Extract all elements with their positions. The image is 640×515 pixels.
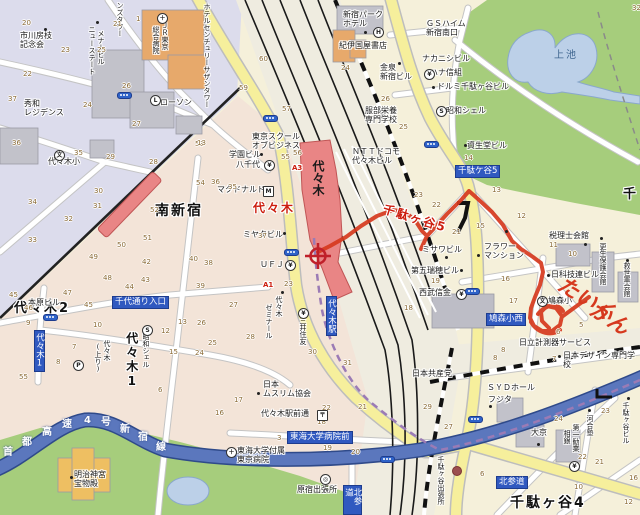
block-number: 26 bbox=[381, 95, 390, 103]
block-number: 45 bbox=[84, 301, 93, 309]
block-number: 26 bbox=[122, 82, 131, 90]
map-label: 代々木駅前通 bbox=[261, 409, 309, 418]
block-number: 37 bbox=[258, 232, 267, 240]
map-sign-label: 代々木駅 bbox=[326, 296, 337, 336]
map-label: 原宿出張所 bbox=[297, 485, 337, 494]
block-number: 8 bbox=[493, 354, 497, 362]
block-number: 18 bbox=[404, 304, 413, 312]
map-label: 新宿パーク ホテル bbox=[343, 10, 383, 28]
building-dot-icon bbox=[281, 291, 284, 294]
block-number: 35 bbox=[74, 149, 83, 157]
block-number: 7 bbox=[552, 355, 556, 363]
map-label: A1 bbox=[263, 281, 273, 289]
block-number: 23 bbox=[284, 280, 293, 288]
block-number: 34 bbox=[28, 198, 37, 206]
block-number: 36 bbox=[211, 178, 220, 186]
block-number: 8 bbox=[501, 346, 505, 354]
block-number: 31 bbox=[93, 202, 102, 210]
block-number: 22 bbox=[23, 70, 32, 78]
traffic-signal-icon bbox=[43, 314, 58, 321]
building-dot-icon bbox=[547, 274, 550, 277]
building-dot-icon bbox=[432, 86, 435, 89]
bank-icon: ¥ bbox=[264, 160, 275, 171]
block-number: 51 bbox=[143, 234, 152, 242]
block-number: 6 bbox=[158, 386, 162, 394]
building-dot-icon bbox=[537, 443, 540, 446]
building-dot-icon bbox=[489, 405, 492, 408]
map-label: 明治神宮 宝物殿 bbox=[74, 470, 106, 488]
map-label: 八千代 bbox=[236, 160, 260, 169]
block-number: 6 bbox=[480, 470, 484, 478]
map-label: 線 bbox=[156, 442, 166, 454]
block-number: 5 bbox=[579, 321, 583, 329]
block-number: 33 bbox=[28, 236, 37, 244]
block-number: 23 bbox=[601, 407, 610, 415]
block-number: 9 bbox=[26, 319, 30, 327]
map-canvas[interactable]: 代々木 南新宿代々木2代々木1千駄ヶ谷4千上池代々木千駄ヶ谷5千駄ケ谷5千代通り… bbox=[0, 0, 640, 515]
block-number: 16 bbox=[629, 474, 638, 482]
block-number: 32 bbox=[632, 4, 640, 12]
block-number: 25 bbox=[208, 339, 217, 347]
map-label: ＪＲ東京 bbox=[161, 22, 169, 50]
map-label: ＳＹＤホール bbox=[487, 383, 535, 392]
map-label: ドルミ千駄ヶ谷ビル bbox=[437, 82, 509, 91]
map-label: 更生保護会館 bbox=[599, 243, 607, 285]
map-sign-label: 千代通り入口 bbox=[112, 296, 169, 309]
block-number: 25 bbox=[399, 123, 408, 131]
block-number: 30 bbox=[308, 348, 317, 356]
block-number: 10 bbox=[93, 321, 102, 329]
block-number: 13 bbox=[197, 139, 206, 147]
block-number: 13 bbox=[178, 318, 187, 326]
map-label: 代々木 bbox=[253, 202, 295, 216]
map-label: 市川房枝 記念会 bbox=[20, 31, 52, 49]
map-label: ゼミナール bbox=[265, 304, 273, 339]
block-number: 27 bbox=[444, 423, 453, 431]
map-label: ホテルセンチュリーサザンタワー bbox=[203, 3, 211, 108]
block-number: 55 bbox=[281, 153, 290, 161]
convenience-store-icon: L bbox=[150, 95, 161, 106]
map-label: ナカニシビル bbox=[422, 54, 470, 63]
block-number: 45 bbox=[9, 291, 18, 299]
map-label: 第一勧業 bbox=[572, 424, 580, 452]
block-number: 1 bbox=[136, 15, 140, 23]
block-number: 49 bbox=[89, 253, 98, 261]
block-number: 54 bbox=[196, 179, 205, 187]
traffic-signal-icon bbox=[284, 249, 299, 256]
map-label: 昭和シェル bbox=[446, 106, 486, 115]
map-label: 相銀 bbox=[563, 430, 571, 444]
map-label: 代々木 bbox=[103, 340, 111, 361]
map-label: 首 bbox=[3, 447, 13, 459]
map-label: 千駄ヶ谷ビル bbox=[622, 402, 630, 444]
block-number: 38 bbox=[204, 259, 213, 267]
traffic-signal-icon bbox=[263, 115, 278, 122]
block-number: 32 bbox=[64, 215, 73, 223]
map-label: 学園ビル bbox=[229, 150, 261, 159]
block-number: 42 bbox=[142, 258, 151, 266]
map-label: 千駄ヶ谷出張所 bbox=[437, 456, 445, 505]
block-number: 21 bbox=[452, 228, 461, 236]
block-number: 21 bbox=[358, 403, 367, 411]
building-dot-icon bbox=[558, 355, 561, 358]
block-number: 27 bbox=[229, 301, 238, 309]
block-number: 15 bbox=[476, 222, 485, 230]
map-label: 秀和 レジデンス bbox=[24, 99, 64, 117]
block-number: 22 bbox=[432, 201, 441, 209]
block-number: 56 bbox=[293, 149, 302, 157]
block-number: 10 bbox=[568, 250, 577, 258]
building-dot-icon bbox=[626, 259, 629, 262]
map-label: 都 bbox=[22, 437, 32, 449]
building-dot-icon bbox=[627, 397, 630, 400]
traffic-signal-icon bbox=[468, 416, 483, 423]
block-number: 27 bbox=[132, 120, 141, 128]
block-number: 16 bbox=[501, 275, 510, 283]
bank-icon: ¥ bbox=[569, 461, 580, 472]
building-dot-icon bbox=[398, 62, 401, 65]
map-label: 救世軍会館 bbox=[623, 262, 631, 297]
block-number: 52 bbox=[150, 206, 159, 214]
building-dot-icon bbox=[260, 153, 263, 156]
map-label: 号 bbox=[101, 417, 111, 429]
block-number: 15 bbox=[169, 348, 178, 356]
block-number: 48 bbox=[103, 274, 112, 282]
block-number: 17 bbox=[509, 297, 518, 305]
building-dot-icon bbox=[445, 256, 448, 259]
block-number: 17 bbox=[234, 396, 243, 404]
block-number: 57 bbox=[282, 105, 291, 113]
map-label: かん bbox=[585, 297, 633, 340]
map-label: ミサワビル bbox=[422, 245, 462, 254]
mcdonalds-icon: M bbox=[263, 186, 274, 197]
map-label: マクドナルド bbox=[217, 185, 265, 194]
block-number: 25 bbox=[97, 46, 106, 54]
building-dot-icon bbox=[70, 476, 73, 479]
building-dot-icon bbox=[364, 31, 367, 34]
block-number: 46 bbox=[24, 304, 33, 312]
map-label: 西武信金 bbox=[419, 288, 451, 297]
parking-icon: P bbox=[73, 360, 84, 371]
map-sign-label: 千駄ケ谷5 bbox=[455, 165, 500, 178]
map-label: 新 bbox=[120, 424, 130, 436]
building-dot-icon bbox=[505, 230, 508, 233]
map-label: 宿 bbox=[138, 432, 148, 444]
block-number: 8 bbox=[56, 358, 60, 366]
map-label: 千 bbox=[623, 188, 638, 203]
block-number: 36 bbox=[12, 139, 21, 147]
traffic-signal-icon bbox=[117, 92, 132, 99]
block-number: 23 bbox=[61, 46, 70, 54]
block-number: 23 bbox=[414, 191, 423, 199]
map-sign-label: 東海大学病院前 bbox=[287, 431, 353, 444]
map-label: 日立計測器サービス bbox=[519, 338, 591, 347]
map-label: 税理士会館 bbox=[549, 231, 589, 240]
block-number: 3 bbox=[277, 434, 281, 442]
entrance-spot-icon bbox=[452, 466, 462, 476]
block-number: 16 bbox=[215, 409, 224, 417]
block-number: 24 bbox=[341, 64, 350, 72]
building-dot-icon bbox=[464, 144, 467, 147]
traffic-signal-icon bbox=[380, 456, 395, 463]
map-label: 三井住友 bbox=[299, 317, 307, 345]
map-label: 第五瑞穂ビル bbox=[411, 266, 459, 275]
block-number: 28 bbox=[149, 158, 158, 166]
block-number: 12 bbox=[161, 327, 170, 335]
block-number: 21 bbox=[113, 20, 122, 28]
hospital-icon: ＋ bbox=[157, 13, 168, 24]
map-label: 南新宿 bbox=[155, 203, 203, 219]
block-number: 39 bbox=[196, 282, 205, 290]
map-label: ＧＳハイム 新宿南口 bbox=[426, 19, 466, 37]
block-number: 14 bbox=[464, 154, 473, 162]
block-number: 47 bbox=[63, 289, 72, 297]
map-sign-label: 鳩森小西 bbox=[486, 313, 526, 326]
block-number: 43 bbox=[141, 276, 150, 284]
block-number: 37 bbox=[8, 95, 17, 103]
block-number: 20 bbox=[22, 19, 31, 27]
map-label: フラワー マンション bbox=[484, 242, 524, 260]
block-number: 13 bbox=[492, 186, 501, 194]
map-label: (上り) bbox=[94, 343, 102, 373]
block-number: 35 bbox=[228, 183, 237, 191]
map-label: 資生堂ビル bbox=[467, 141, 507, 150]
building-dot-icon bbox=[44, 28, 47, 31]
block-number: 40 bbox=[189, 255, 198, 263]
map-label: フジタ bbox=[488, 395, 512, 404]
map-label: 日本 ムスリム協会 bbox=[263, 380, 311, 398]
block-number: 11 bbox=[549, 241, 558, 249]
block-number: 31 bbox=[343, 359, 352, 367]
ward-office-icon: ◎ bbox=[320, 474, 331, 485]
block-number: 12 bbox=[624, 498, 633, 506]
block-number: 24 bbox=[195, 349, 204, 357]
building-dot-icon bbox=[257, 392, 260, 395]
block-number: 24 bbox=[83, 101, 92, 109]
map-sign-label: 代々木1 bbox=[34, 330, 45, 372]
map-label: 上池 bbox=[554, 50, 578, 62]
map-label: ローソン bbox=[160, 98, 192, 107]
block-number: 30 bbox=[94, 187, 103, 195]
block-number: 44 bbox=[125, 283, 134, 291]
map-label: ＵＦＪ bbox=[260, 260, 284, 269]
map-label: 東海大学付属 東京病院 bbox=[237, 446, 285, 464]
block-number: 55 bbox=[19, 373, 28, 381]
map-label: 日本デザイン専門学校 bbox=[563, 351, 640, 369]
gas-station-icon: S bbox=[436, 106, 447, 117]
block-number: 26 bbox=[197, 319, 206, 327]
map-label: 4 bbox=[84, 415, 91, 427]
bank-icon: ¥ bbox=[424, 69, 435, 80]
block-number: 7 bbox=[72, 343, 76, 351]
bank-icon: ¥ bbox=[285, 260, 296, 271]
map-label: 代々木 bbox=[275, 296, 283, 317]
block-number: 29 bbox=[423, 403, 432, 411]
block-number: 10 bbox=[574, 483, 583, 491]
block-number: 21 bbox=[595, 458, 604, 466]
post-office-icon: 〒 bbox=[317, 410, 328, 421]
block-number: 29 bbox=[106, 153, 115, 161]
map-label: A3 bbox=[292, 164, 302, 172]
map-label: 代々木1 bbox=[124, 332, 138, 390]
block-number: 12 bbox=[517, 212, 526, 220]
building-dot-icon bbox=[584, 243, 587, 246]
map-label: 金泉 新宿ビル bbox=[380, 63, 412, 81]
map-sign-label: 北参道 bbox=[343, 485, 362, 515]
map-label: ニューステート bbox=[88, 26, 96, 75]
map-label: 高 bbox=[42, 427, 52, 439]
map-label: 速 bbox=[62, 419, 72, 431]
block-number: 19 bbox=[431, 277, 440, 285]
block-number: 22 bbox=[578, 453, 587, 461]
block-number: 24 bbox=[554, 415, 563, 423]
map-label: 大京 bbox=[531, 428, 547, 437]
map-label: 河合塾 bbox=[586, 415, 594, 436]
bank-icon: ¥ bbox=[298, 308, 309, 319]
map-label: 千駄ヶ谷4 bbox=[510, 495, 586, 511]
map-label: 日本共産党 bbox=[412, 369, 452, 378]
map-label: 総合病院 bbox=[152, 26, 160, 54]
block-number: 60 bbox=[259, 55, 268, 63]
block-number: 59 bbox=[239, 84, 248, 92]
block-number: 50 bbox=[117, 241, 126, 249]
building-dot-icon bbox=[96, 21, 99, 24]
block-number: 20 bbox=[351, 448, 360, 456]
map-label: 紀伊国屋書店 bbox=[339, 41, 387, 50]
building-dot-icon bbox=[588, 409, 591, 412]
block-number: 6 bbox=[556, 328, 560, 336]
building-dot-icon bbox=[283, 232, 286, 235]
hospital-icon: ＋ bbox=[226, 447, 237, 458]
school-icon: 文 bbox=[537, 296, 548, 307]
map-label: 東京スクール オブビジネス bbox=[252, 132, 300, 150]
block-number: 19 bbox=[323, 444, 332, 452]
traffic-signal-icon bbox=[424, 141, 439, 148]
map-label: 服部栄養 専門学校 bbox=[365, 106, 397, 124]
building-dot-icon bbox=[460, 269, 463, 272]
block-number: 28 bbox=[246, 333, 255, 341]
hotel-icon: H bbox=[373, 27, 384, 38]
building-dot-icon bbox=[600, 237, 603, 240]
map-sign-label: 北参道 bbox=[496, 476, 528, 489]
map-label: ＮＴＴドコモ 代々木ビル bbox=[352, 147, 400, 165]
building-dot-icon bbox=[477, 254, 480, 257]
school-icon: 文 bbox=[54, 150, 65, 161]
map-label: 昭和シェル bbox=[142, 333, 150, 368]
traffic-signal-icon bbox=[465, 288, 480, 295]
map-labels-layer: 南新宿代々木2代々木1千駄ヶ谷4千上池代々木千駄ヶ谷5千駄ケ谷5千代通り入口代々… bbox=[0, 0, 640, 515]
gas-station-icon: S bbox=[142, 325, 153, 336]
